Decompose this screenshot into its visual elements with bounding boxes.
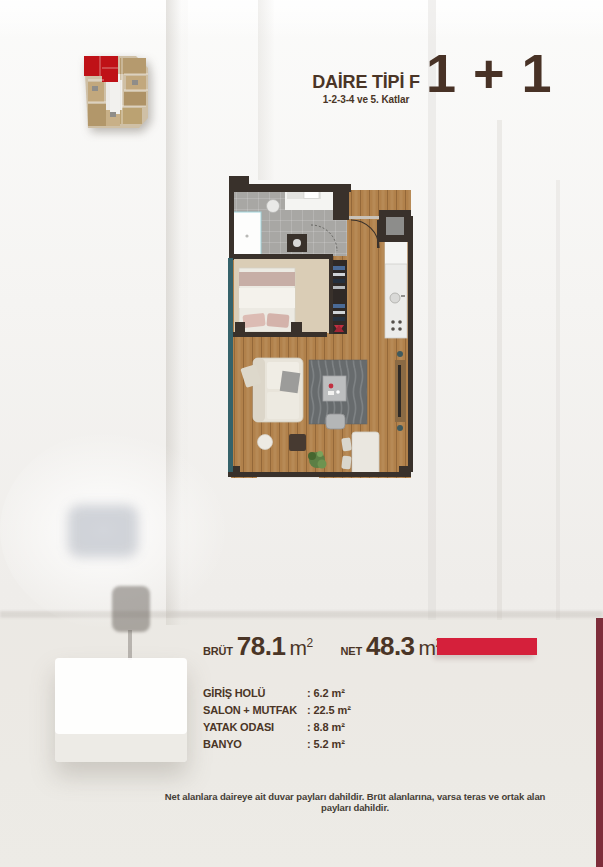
plan-bathroom <box>231 188 347 258</box>
kitchen-sink-icon <box>390 293 400 303</box>
dining-table-icon <box>352 432 379 476</box>
room-label: BANYO <box>203 738 307 750</box>
brut-value: 78.1 <box>237 636 286 656</box>
background-window-frame-2 <box>497 120 502 620</box>
plan-bedroom <box>234 259 329 333</box>
background-wall-floor-line <box>0 611 603 618</box>
floors-subtitle: 1-2-3-4 ve 5. Katlar <box>300 94 432 105</box>
building-key-plan <box>80 50 152 132</box>
background-lamp <box>112 586 150 632</box>
net-label: NET <box>341 645 362 657</box>
brochure-page: DAİRE TİPİ F 1-2-3-4 ve 5. Katlar 1 + 1 <box>0 0 603 867</box>
round-table-icon <box>258 435 273 450</box>
background-lamp-stem <box>128 630 132 660</box>
room-value: : 5.2 m² <box>307 738 345 750</box>
right-edge-accent-bar <box>596 618 603 867</box>
brut-unit: m2 <box>289 636 312 660</box>
sink-icon <box>267 200 280 213</box>
pouf-icon <box>289 434 306 451</box>
shaft-icon <box>386 217 404 235</box>
net-value: 48.3 <box>366 636 415 656</box>
background-window-frame-3 <box>556 180 560 620</box>
room-label: SALON + MUTFAK <box>203 704 307 716</box>
window-wall-icon <box>228 258 233 472</box>
room-value: : 6.2 m² <box>307 687 345 699</box>
background-top-glow <box>0 0 603 40</box>
background-pillow <box>68 505 138 557</box>
coffee-table-icon <box>323 376 346 401</box>
floor-plan-image <box>225 176 415 493</box>
background-doorframe-2 <box>258 0 274 180</box>
nightstand-icon <box>291 322 302 332</box>
room-row: YATAK ODASI : 8.8 m² <box>203 718 423 735</box>
chair-icon <box>341 456 351 470</box>
background-bed <box>0 430 230 630</box>
room-label: GİRİŞ HOLÜ <box>203 687 307 699</box>
pillow-icon <box>242 313 265 328</box>
nightstand-icon <box>235 322 245 332</box>
disclaimer-note: Net alanlara daireye ait duvar payları d… <box>160 791 550 813</box>
chair-icon <box>341 437 352 451</box>
room-value: : 22.5 m² <box>307 704 351 716</box>
page-title: DAİRE TİPİ F <box>300 72 432 93</box>
room-row: SALON + MUTFAK : 22.5 m² <box>203 701 423 718</box>
background-doorframe <box>166 0 188 625</box>
header-title-block: DAİRE TİPİ F 1-2-3-4 ve 5. Katlar <box>300 72 432 105</box>
room-value: : 8.8 m² <box>307 721 345 733</box>
room-label: YATAK ODASI <box>203 721 307 733</box>
plan-kitchen <box>385 242 407 338</box>
brut-label: BRÜT <box>203 645 233 657</box>
apartment-type-label: 1 + 1 <box>426 42 556 104</box>
room-row: GİRİŞ HOLÜ : 6.2 m² <box>203 684 423 701</box>
background-side-table <box>55 658 187 762</box>
stove-icon <box>391 320 395 324</box>
room-row: BANYO : 5.2 m² <box>203 735 423 752</box>
plan-wardrobe <box>331 260 347 334</box>
accent-red-bar <box>437 638 537 655</box>
pillow-icon <box>266 313 289 328</box>
room-list: GİRİŞ HOLÜ : 6.2 m² SALON + MUTFAK : 22.… <box>203 684 423 752</box>
armchair-icon <box>326 414 345 429</box>
